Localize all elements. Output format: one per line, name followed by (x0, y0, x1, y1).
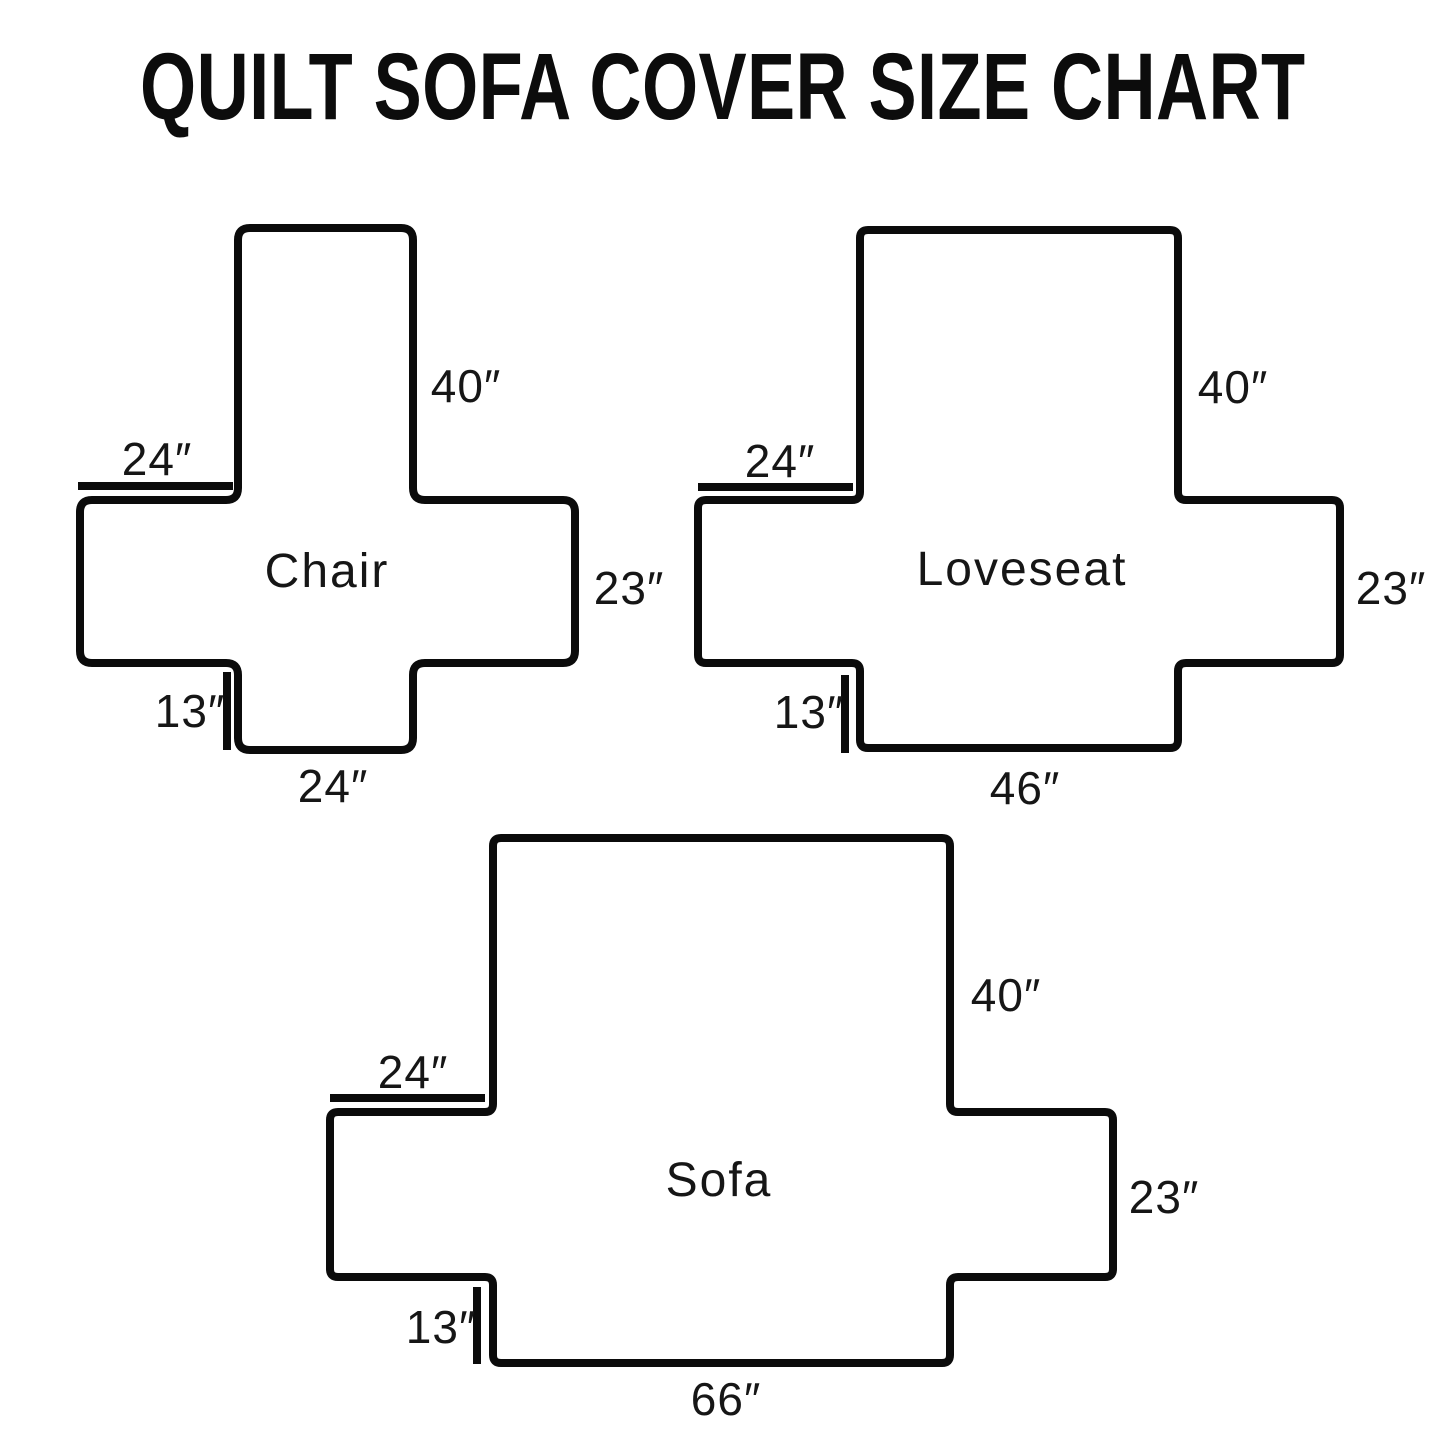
loveseat-flap-depth-label: 13″ (774, 689, 844, 735)
sofa-side-height-label: 23″ (1129, 1174, 1199, 1220)
chair-name-label: Chair (265, 548, 390, 596)
loveseat-side-height-label: 23″ (1356, 565, 1426, 611)
size-chart: QUILT SOFA COVER SIZE CHART Chair 40″ 24… (0, 0, 1445, 1435)
chair-arm-width-label: 24″ (122, 436, 192, 482)
sofa-bottom-width-label: 66″ (691, 1376, 761, 1422)
sofa-name-label: Sofa (666, 1157, 773, 1205)
loveseat-back-height-label: 40″ (1198, 364, 1268, 410)
chair-flap-depth-label: 13″ (155, 688, 225, 734)
sofa-arm-width-label: 24″ (378, 1049, 448, 1095)
loveseat-name-label: Loveseat (917, 546, 1128, 594)
chair-back-height-label: 40″ (431, 363, 501, 409)
sofa-flap-depth-label: 13″ (406, 1304, 476, 1350)
loveseat-arm-width-label: 24″ (745, 438, 815, 484)
loveseat-bottom-width-label: 46″ (990, 765, 1060, 811)
chair-bottom-width-label: 24″ (298, 763, 368, 809)
sofa-back-height-label: 40″ (971, 972, 1041, 1018)
chair-side-height-label: 23″ (594, 565, 664, 611)
